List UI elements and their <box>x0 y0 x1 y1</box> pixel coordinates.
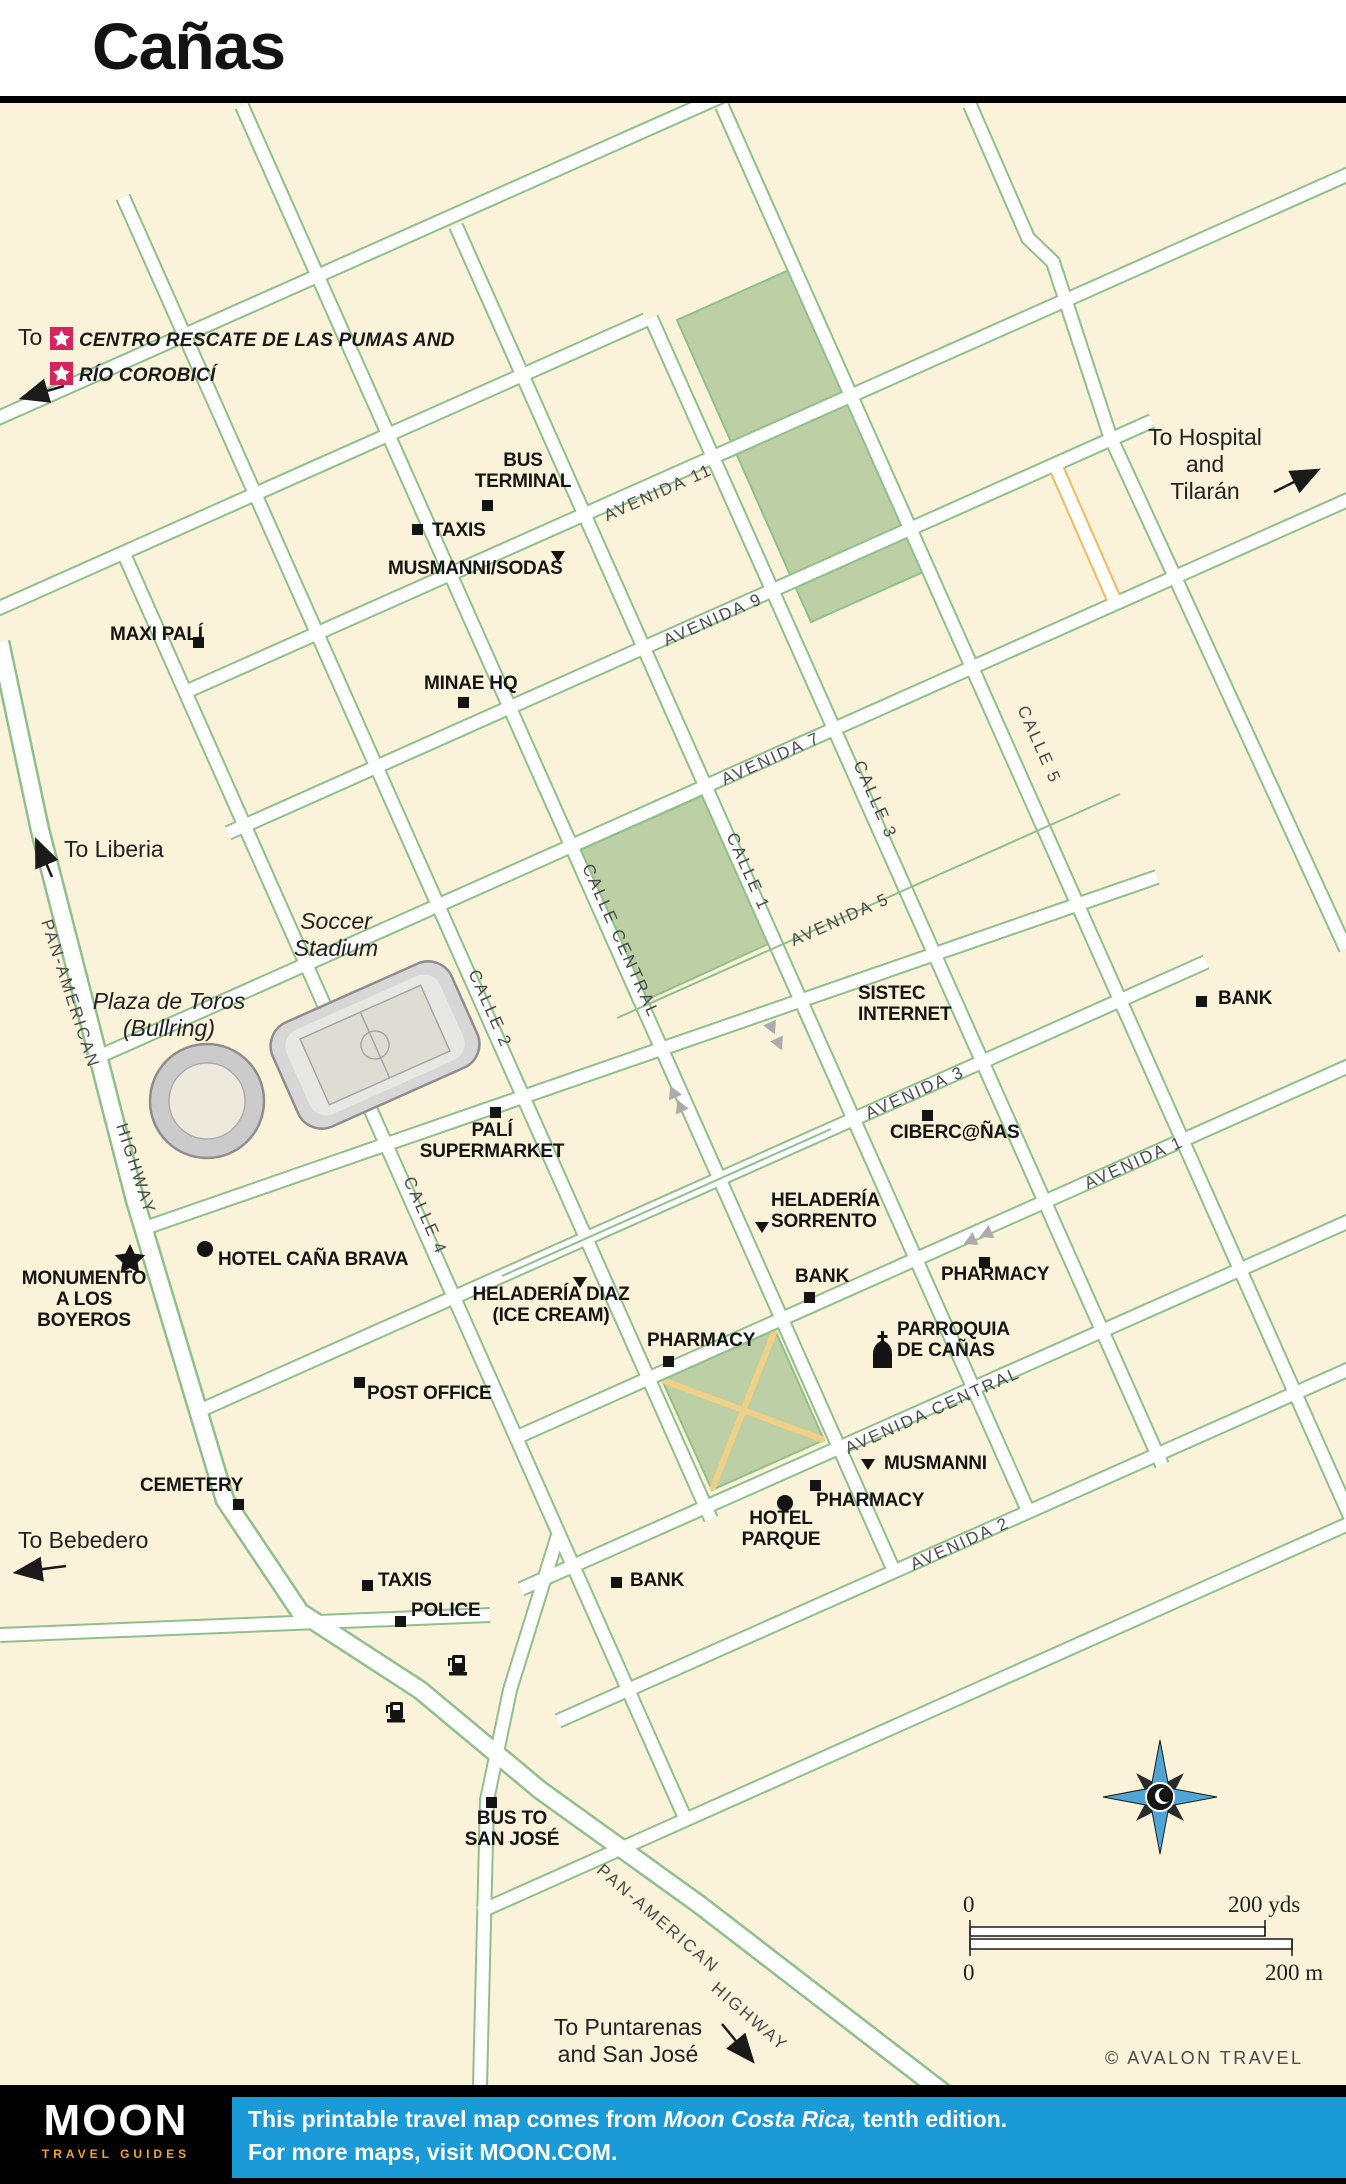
poi-cibercanas: CIBERC@ÑAS <box>890 1122 1019 1143</box>
poi-police: POLICE <box>411 1600 481 1621</box>
label-to-hospital: To Hospital and Tilarán <box>1135 424 1276 505</box>
marker-bank-south <box>611 1577 622 1588</box>
title-rule <box>0 96 1346 103</box>
label-to-rescate-prefix: To <box>18 324 42 351</box>
marker-bank-ne <box>1196 996 1207 1007</box>
label-rio-corobici: RÍO COROBICÍ <box>79 365 215 387</box>
poi-post-office: POST OFFICE <box>367 1383 491 1404</box>
poi-heladeria-sorrento: HELADERÍA SORRENTO <box>771 1190 880 1232</box>
poi-hotel-cana-brava: HOTEL CAÑA BRAVA <box>218 1249 408 1270</box>
footer-text: This printable travel map comes from Moo… <box>248 2103 1007 2169</box>
footer-line1: This printable travel map comes from Moo… <box>248 2103 1007 2136</box>
poi-pharmacy-center: PHARMACY <box>647 1330 755 1351</box>
marker-cibercanas <box>922 1110 933 1121</box>
poi-taxis-north: TAXIS <box>432 520 486 541</box>
poi-minae-hq: MINAE HQ <box>424 673 517 694</box>
marker-taxis-north <box>412 524 423 535</box>
scale-zero-yds: 0 <box>963 1892 975 1918</box>
poi-pali-supermarket: PALÍ SUPERMARKET <box>420 1120 565 1162</box>
page-header: Cañas <box>0 0 1346 96</box>
footer-line1-suffix: tenth edition. <box>856 2106 1007 2132</box>
poi-maxi-pali: MAXI PALÍ <box>110 624 203 645</box>
footer-line2: For more maps, visit MOON.COM. <box>248 2136 1007 2169</box>
marker-pharmacy-center <box>663 1356 674 1367</box>
poi-hotel-parque: HOTEL PARQUE <box>742 1508 821 1550</box>
scale-200-m: 200 m <box>1265 1960 1323 1986</box>
marker-bus-san-jose <box>486 1797 497 1808</box>
poi-taxis-south: TAXIS <box>378 1570 432 1591</box>
poi-pharmacy-east: PHARMACY <box>941 1264 1049 1285</box>
poi-musmanni-sodas: MUSMANNI/SODAS <box>388 558 563 579</box>
marker-hotel-cana-brava <box>197 1241 213 1257</box>
footer-line1-prefix: This printable travel map comes from <box>248 2106 663 2132</box>
marker-cemetery <box>233 1499 244 1510</box>
footer-line1-book-title: Moon Costa Rica, <box>663 2106 856 2132</box>
poi-bus-to-san-jose: BUS TO SAN JOSÉ <box>465 1808 560 1850</box>
poi-pharmacy-south: PHARMACY <box>816 1490 924 1511</box>
poi-musmanni-south: MUSMANNI <box>884 1453 987 1474</box>
marker-pali-supermarket <box>490 1107 501 1118</box>
marker-minae <box>458 697 469 708</box>
scale-200-yds: 200 yds <box>1228 1892 1300 1918</box>
poi-heladeria-diaz: HELADERÍA DIAZ (ICE CREAM) <box>473 1284 630 1326</box>
bullring-shape <box>150 1044 264 1158</box>
poi-bank-center: BANK <box>795 1266 849 1287</box>
poi-bank-south: BANK <box>630 1570 684 1591</box>
poi-cemetery: CEMETERY <box>140 1475 243 1496</box>
label-to-puntarenas: To Puntarenas and San José <box>554 2014 702 2068</box>
label-soccer-stadium: Soccer Stadium <box>294 908 378 962</box>
marker-post-office <box>354 1377 365 1388</box>
footer-bar: MOON TRAVEL GUIDES This printable travel… <box>0 2085 1346 2184</box>
label-bullring: Plaza de Toros (Bullring) <box>93 988 246 1042</box>
moon-logo-tagline: TRAVEL GUIDES <box>0 2147 232 2161</box>
marker-bank-center <box>804 1292 815 1303</box>
avalon-credit: © AVALON TRAVEL <box>1105 2048 1304 2069</box>
map-page: Cañas To CENTRO RESCATE DE LAS PUMAS AND… <box>0 0 1346 2184</box>
marker-taxis-south <box>362 1580 373 1591</box>
moon-logo: MOON TRAVEL GUIDES <box>0 2085 232 2184</box>
label-to-bebedero: To Bebedero <box>18 1527 148 1554</box>
scale-zero-m: 0 <box>963 1960 975 1986</box>
poi-parroquia-canas: PARROQUIA DE CAÑAS <box>897 1319 1010 1361</box>
page-title: Cañas <box>92 8 285 84</box>
marker-police <box>395 1616 406 1627</box>
poi-bank-northeast: BANK <box>1218 988 1272 1009</box>
poi-bus-terminal: BUS TERMINAL <box>475 450 572 492</box>
label-centro-rescate: CENTRO RESCATE DE LAS PUMAS AND <box>79 330 455 352</box>
poi-sistec-internet: SISTEC INTERNET <box>858 983 951 1025</box>
moon-logo-wordmark: MOON <box>0 2099 232 2143</box>
marker-bus-terminal <box>482 500 493 511</box>
poi-monumento-boyeros: MONUMENTO A LOS BOYEROS <box>22 1268 147 1331</box>
label-to-liberia: To Liberia <box>64 836 164 863</box>
base-map-graphic <box>0 0 1346 2184</box>
